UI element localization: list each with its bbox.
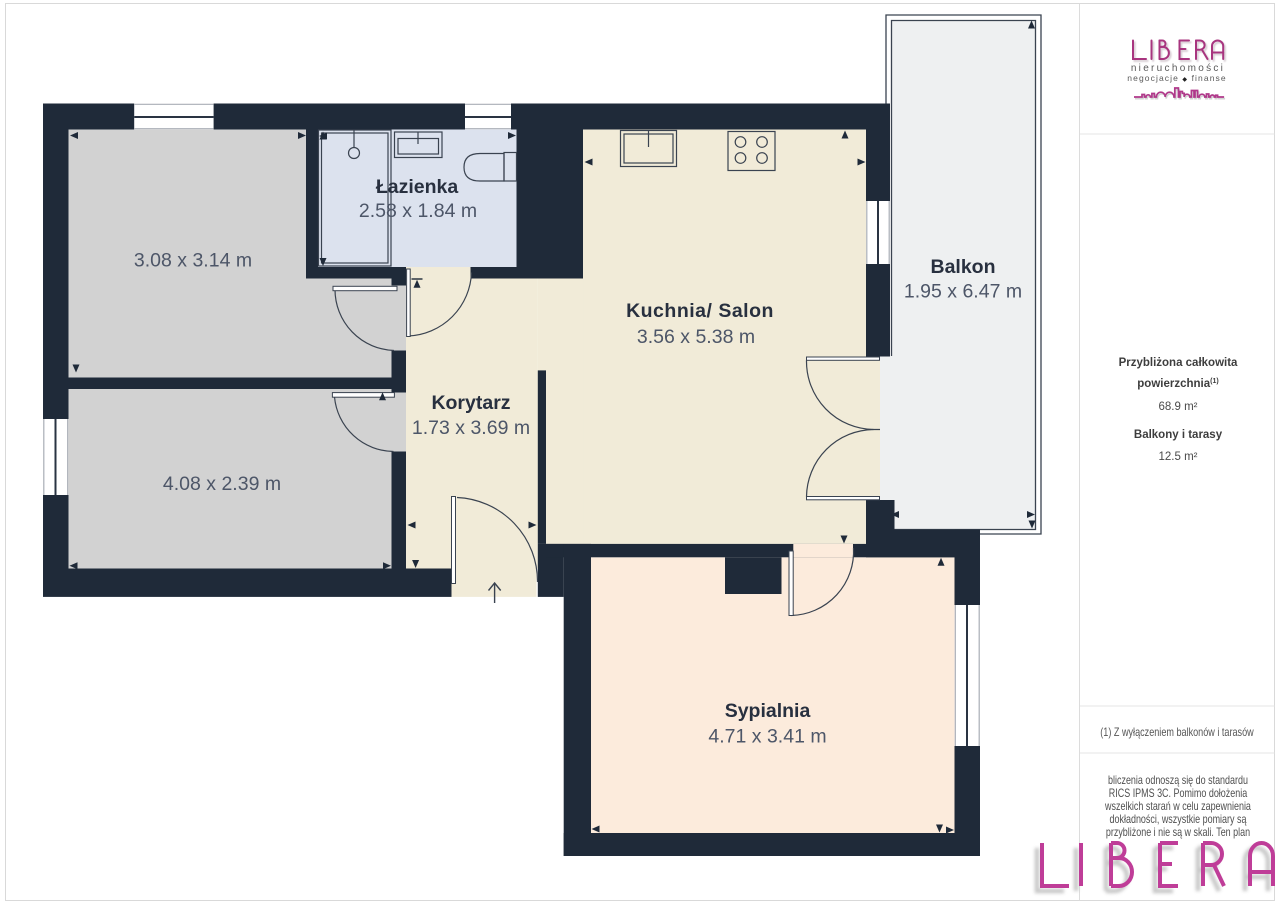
svg-text:4.08 x 2.39 m: 4.08 x 2.39 m [163,473,281,495]
svg-text:Sypialnia: Sypialnia [725,700,811,722]
svg-text:3.08 x 3.14 m: 3.08 x 3.14 m [134,250,252,272]
svg-text:Kuchnia/ Salon: Kuchnia/ Salon [626,300,774,322]
svg-text:4.71 x 3.41 m: 4.71 x 3.41 m [708,726,826,748]
svg-text:powierzchnia(1): powierzchnia(1) [1137,378,1218,390]
svg-text:negocjacje ◆ finanse: negocjacje ◆ finanse [1127,73,1226,83]
svg-text:Balkony i tarasy: Balkony i tarasy [1134,429,1223,441]
svg-text:przybliżone i nie są w skali.: przybliżone i nie są w skali. Ten plan [1106,827,1250,839]
svg-text:bliczenia odnoszą się do stand: bliczenia odnoszą się do standardu [1108,775,1248,787]
svg-text:1.95 x 6.47 m: 1.95 x 6.47 m [904,281,1022,303]
svg-text:(1) Z wyłączeniem balkonów i t: (1) Z wyłączeniem balkonów i tarasów [1100,727,1254,739]
svg-text:wszelkich starań w celu zapewn: wszelkich starań w celu zapewnienia [1104,801,1251,813]
svg-text:dokładności, wszystkie pomiary: dokładności, wszystkie pomiary są [1110,814,1247,826]
svg-text:RICS IPMS 3C. Pomimo dołożenia: RICS IPMS 3C. Pomimo dołożenia [1109,788,1248,800]
svg-text:12.5 m²: 12.5 m² [1159,451,1198,463]
svg-text:Korytarz: Korytarz [431,392,510,414]
svg-text:2.58 x 1.84 m: 2.58 x 1.84 m [359,200,477,222]
svg-text:Łazienka: Łazienka [376,176,459,198]
svg-text:3.56 x 5.38 m: 3.56 x 5.38 m [637,326,755,348]
svg-text:Przybliżona całkowita: Przybliżona całkowita [1119,357,1238,369]
svg-text:Balkon: Balkon [930,256,995,278]
svg-text:1.73 x 3.69 m: 1.73 x 3.69 m [412,417,530,439]
svg-text:68.9 m²: 68.9 m² [1159,401,1198,413]
